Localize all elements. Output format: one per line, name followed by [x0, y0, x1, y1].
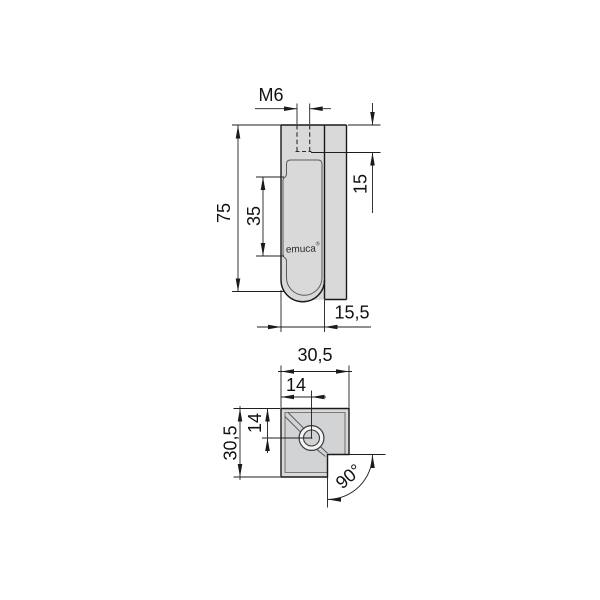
dim-30-5-top-arrow-left	[281, 369, 294, 374]
dim-75-arrow-top	[236, 126, 241, 139]
dim-m6-label: M6	[258, 85, 283, 105]
dim-15-arrow-top	[370, 112, 375, 125]
dim-15-label: 15	[351, 174, 371, 194]
dim-35-arrow-bottom	[261, 243, 266, 256]
dim-14-top-arrow-left	[281, 395, 294, 400]
dim-m6: M6	[255, 85, 331, 124]
dim-35-label: 35	[244, 206, 264, 226]
dim-90-angle: 90°	[328, 455, 386, 508]
side-view: emuca®	[281, 125, 347, 302]
dim-35-arrow-top	[261, 177, 266, 190]
dim-m6-arrow-right	[310, 106, 323, 111]
dim-14-left-arrow-top	[265, 409, 270, 422]
dim-35: 35	[244, 177, 284, 256]
dim-75-label: 75	[214, 203, 234, 223]
dim-90-label: 90°	[332, 460, 366, 493]
dim-15-arrow-bottom	[370, 153, 375, 166]
dim-30-5-left-label: 30,5	[221, 425, 241, 460]
dim-15-5-arrow-right	[325, 325, 338, 330]
dim-14-left-arrow-bottom	[265, 438, 270, 451]
dim-14-top-label: 14	[286, 375, 306, 395]
dim-15-5-arrow-left	[268, 325, 281, 330]
dim-m6-arrow-left	[284, 106, 297, 111]
drawing-svg: emuca® M6 75 35	[0, 0, 600, 600]
dim-15-5-label: 15,5	[334, 303, 369, 323]
dim-90-arrow-bottom	[328, 497, 341, 502]
dim-14-left-label: 14	[245, 413, 265, 433]
dim-14-top-arrow-right	[312, 395, 325, 400]
dim-75-arrow-bottom	[236, 279, 241, 292]
dim-30-5-left-arrow-bottom	[238, 464, 243, 477]
dim-30-5-left-arrow-top	[238, 409, 243, 422]
dim-30-5-top-label: 30,5	[297, 345, 332, 365]
technical-drawing-page: emuca® M6 75 35	[0, 0, 600, 600]
dim-30-5-top-arrow-right	[336, 369, 349, 374]
dim-90-arrow-right	[370, 455, 375, 468]
side-view-body	[281, 125, 347, 302]
section-view	[281, 409, 349, 478]
